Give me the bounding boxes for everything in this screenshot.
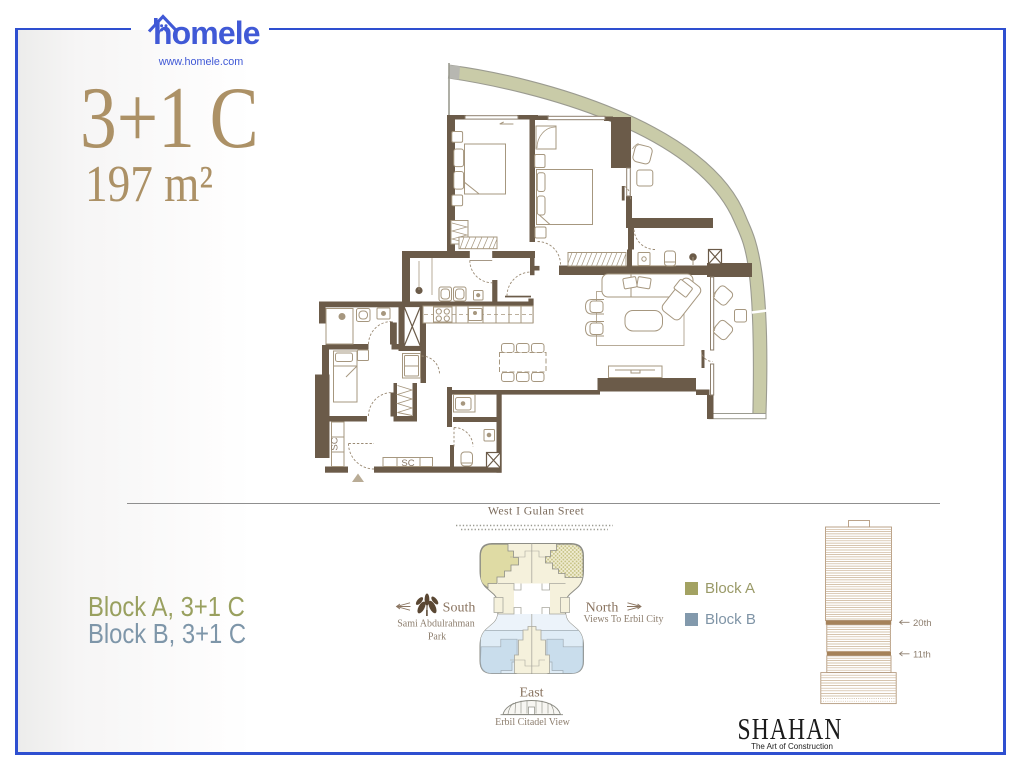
svg-text:SC: SC — [330, 437, 341, 450]
svg-text:East: East — [519, 686, 543, 701]
svg-text:20th: 20th — [913, 618, 932, 629]
svg-text:Erbil Citadel View: Erbil Citadel View — [495, 717, 571, 728]
svg-text:South: South — [443, 601, 476, 616]
svg-text:West I Gulan Sreet: West I Gulan Sreet — [488, 504, 585, 518]
svg-text:Sami Abdulrahman: Sami Abdulrahman — [397, 619, 475, 630]
svg-text:Views To Erbil City: Views To Erbil City — [584, 614, 664, 625]
svg-text:11th: 11th — [913, 649, 931, 660]
svg-text:SC: SC — [401, 458, 414, 469]
svg-text:Park: Park — [428, 632, 446, 643]
